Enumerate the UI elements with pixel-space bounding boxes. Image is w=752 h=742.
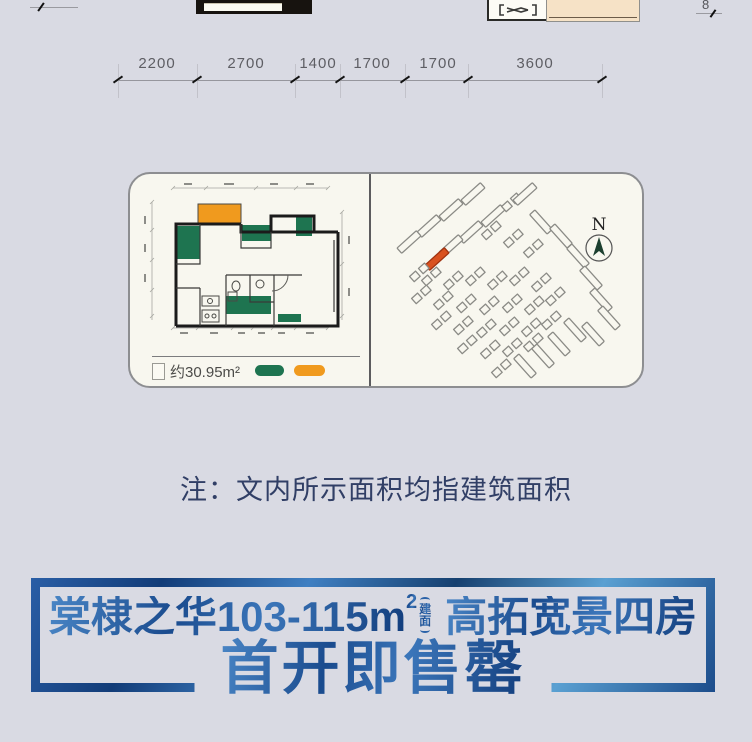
building-footprint <box>504 229 524 248</box>
building-footprint <box>439 199 463 222</box>
area-box-icon <box>152 363 165 380</box>
building-footprint <box>542 311 562 330</box>
building-footprint <box>492 359 512 378</box>
promo-banner: 棠棣之华103-115m2建面高拓宽景四房 首开即售罄 <box>31 578 715 692</box>
headline-prefix: 棠棣之华103-115m <box>49 596 406 638</box>
building-footprint <box>524 239 544 258</box>
building-footprint <box>458 335 478 354</box>
building-footprint <box>432 311 452 330</box>
building-footprint <box>550 224 573 248</box>
balcony-orange <box>198 204 241 223</box>
area-label: 约30.95m² <box>170 361 240 382</box>
building-footprint <box>582 322 605 346</box>
legend-divider <box>152 356 360 357</box>
dimension-label: 1700 <box>353 55 390 72</box>
headline-suffix: 高拓宽景四房 <box>445 596 697 638</box>
area-label-group: 约30.95m² <box>152 361 240 382</box>
floorplan-card: 约30.95m² N <box>128 172 644 388</box>
building-footprint <box>434 291 454 310</box>
building-footprint <box>503 294 523 313</box>
north-arrow-icon: N <box>586 215 612 261</box>
property-poster: 8 220027001400170017003600 <box>0 0 752 742</box>
banner-subline-wrap: 首开即售罄 <box>194 640 551 698</box>
building-footprint <box>488 271 508 290</box>
building-footprint <box>564 318 587 342</box>
dimension-label: 2200 <box>138 55 175 72</box>
dimension-label: 1400 <box>299 55 336 72</box>
legend-green-pill <box>255 365 284 376</box>
dimension-label: 1700 <box>419 55 456 72</box>
building-footprint <box>444 271 464 290</box>
building-footprint <box>532 273 552 292</box>
headline-superscript: 2 <box>406 592 417 612</box>
site-plan-drawing: N <box>373 176 635 382</box>
dimension-label: 2700 <box>227 55 264 72</box>
area-note: 注：文内所示面积均指建筑面积 <box>0 468 752 507</box>
building-footprint <box>580 266 603 290</box>
building-footprint <box>457 294 477 313</box>
building-footprint <box>477 319 497 338</box>
building-footprint <box>532 344 555 368</box>
building-footprint <box>514 354 537 378</box>
unit-floorplan-panel: 约30.95m² <box>130 174 369 386</box>
building-footprint <box>525 296 545 315</box>
banner-headline: 棠棣之华103-115m2建面高拓宽景四房 <box>31 596 715 638</box>
site-buildings <box>397 183 620 378</box>
dimension-main-line <box>118 80 602 81</box>
jianmian-note: 建面 <box>419 597 431 633</box>
building-footprint <box>466 267 486 286</box>
dimension-row: 220027001400170017003600 <box>0 0 752 110</box>
unit-floorplan-drawing <box>138 180 358 352</box>
dimension-label: 3600 <box>516 55 553 72</box>
north-label: N <box>592 215 607 235</box>
building-footprint <box>417 215 441 238</box>
building-footprint <box>480 296 500 315</box>
building-footprint <box>500 317 520 336</box>
legend-orange-pill <box>294 365 325 376</box>
building-footprint <box>546 287 566 306</box>
building-footprint <box>548 332 571 356</box>
building-footprint <box>454 316 474 335</box>
building-footprint <box>397 231 421 254</box>
building-footprint <box>481 340 501 359</box>
building-footprint <box>412 285 432 304</box>
jianmian-bottom: 面 <box>419 615 431 627</box>
building-footprint <box>461 183 485 206</box>
building-footprint <box>530 210 553 234</box>
building-footprint <box>510 267 530 286</box>
banner-subline: 首开即售罄 <box>220 636 525 701</box>
site-plan-panel: N <box>371 174 642 386</box>
